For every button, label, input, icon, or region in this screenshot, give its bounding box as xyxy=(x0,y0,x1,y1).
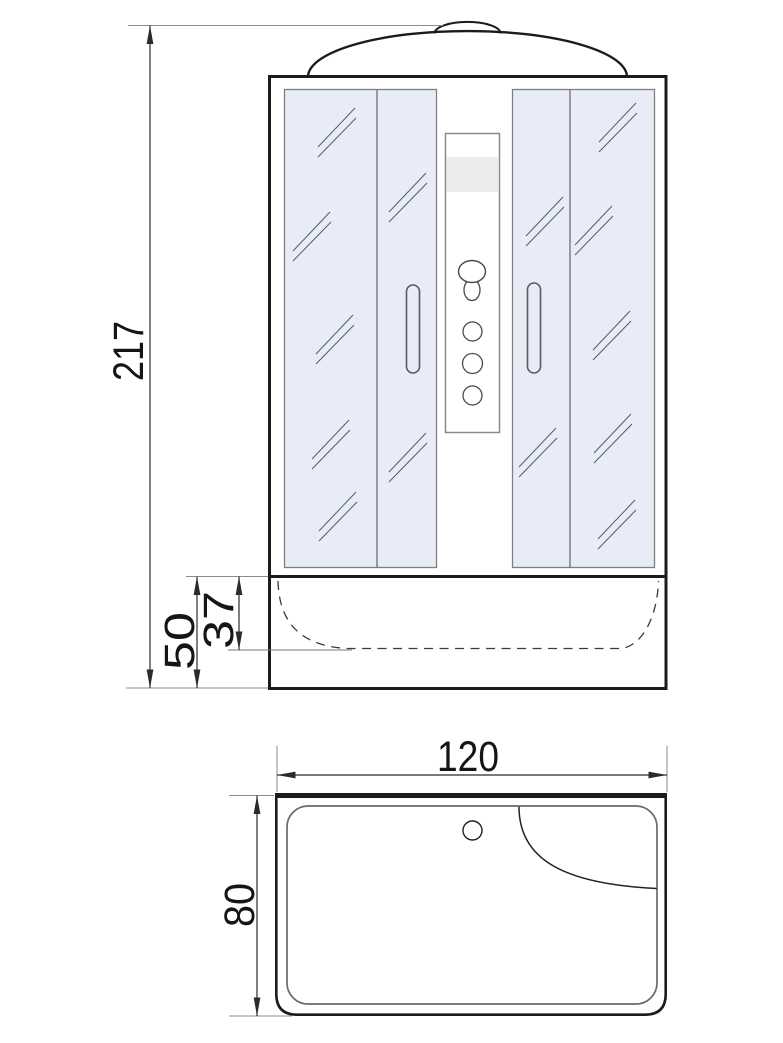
control-dial-icon xyxy=(463,354,483,374)
arrowhead-down-icon xyxy=(147,670,154,689)
control-dial-icon xyxy=(463,322,482,341)
shower-head-icon xyxy=(459,261,486,283)
arrowhead-right-icon xyxy=(649,772,668,779)
glass-panel-left-group xyxy=(285,90,437,568)
arrowhead-left-icon xyxy=(277,772,296,779)
dim-basin-depth-label: 37 xyxy=(195,591,243,649)
shower-column xyxy=(446,134,500,433)
drawing-canvas: 217 50 37 120 80 xyxy=(0,0,783,1043)
front-view xyxy=(268,22,667,689)
dome-roof xyxy=(308,31,627,77)
drain-hole-icon xyxy=(463,821,482,840)
dim-width-label: 120 xyxy=(437,733,499,781)
arrowhead-down-icon xyxy=(254,998,261,1017)
arrowhead-down-icon xyxy=(194,670,201,689)
dimension-width: 120 xyxy=(277,733,667,792)
shower-column-band xyxy=(447,157,498,192)
arrowhead-up-icon xyxy=(254,796,261,815)
dim-overall-height-label: 217 xyxy=(105,321,153,381)
arrowhead-up-icon xyxy=(147,26,154,45)
dim-depth-label: 80 xyxy=(216,883,264,927)
control-dial-icon xyxy=(463,386,482,405)
glass-panel-right-group xyxy=(513,90,655,568)
top-view xyxy=(275,796,667,1015)
